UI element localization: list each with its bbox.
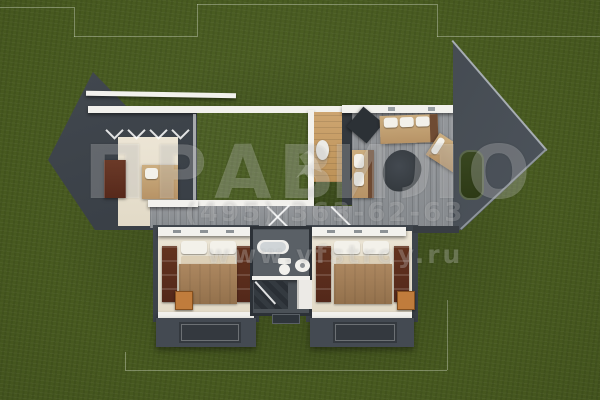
deck-window-mark — [388, 107, 395, 111]
window-mark — [380, 230, 388, 233]
bed-pillow — [210, 241, 236, 254]
bathtub — [257, 240, 289, 254]
bedroom-left-window-wall — [158, 227, 252, 236]
house-plan — [0, 0, 600, 400]
bathtub-basin — [260, 242, 286, 252]
sofa-pillow — [384, 117, 398, 127]
hallway-wall — [148, 200, 198, 207]
bedroom-left-porch — [156, 318, 256, 347]
door-swing-line — [268, 205, 290, 227]
nightstand — [175, 291, 193, 310]
bed-pillow — [363, 241, 389, 254]
bedroom-right-porch — [310, 318, 414, 347]
window-mark — [226, 230, 234, 233]
plant — [316, 140, 329, 160]
sofa-pillow — [416, 116, 430, 126]
sofa-pillow — [145, 168, 158, 179]
window-mark — [200, 230, 208, 233]
door-swing — [268, 206, 290, 228]
sofa-pillow — [354, 172, 364, 186]
sofa-armrest — [368, 150, 374, 198]
deck-window-mark — [428, 107, 435, 111]
window-mark — [173, 230, 181, 233]
courtyard-wall-left — [193, 114, 196, 202]
deck-side-sofa — [352, 150, 374, 198]
cabinet — [104, 160, 126, 198]
sofa-pillow — [400, 117, 414, 127]
bathroom-door-panel — [297, 280, 312, 309]
porch-rug — [333, 322, 397, 343]
roof-window — [459, 150, 484, 200]
sofa-pillow — [354, 154, 364, 168]
bed-blanket — [334, 264, 392, 304]
toilet-bowl — [279, 264, 290, 275]
bedroom-right-window-wall — [312, 227, 406, 236]
exterior-wall — [413, 226, 459, 233]
bed-pillow — [334, 241, 360, 254]
courtyard-lawn — [197, 113, 308, 202]
pergola-beam — [88, 106, 344, 113]
window-mark — [354, 230, 362, 233]
floor-plan-render: ПРАВ ИЛО (495) 363-62-63 www.vfstroy.ru — [0, 0, 600, 400]
washbasin-drain — [300, 263, 305, 268]
window-mark — [327, 230, 335, 233]
bed-pillow — [181, 241, 207, 254]
door-mat — [272, 314, 300, 324]
porch-rug — [179, 322, 241, 343]
living-room-sofa — [142, 165, 178, 199]
deck-sofa — [380, 114, 439, 144]
washbasin — [295, 259, 310, 272]
wardrobe — [316, 246, 331, 302]
nightstand — [397, 291, 415, 310]
